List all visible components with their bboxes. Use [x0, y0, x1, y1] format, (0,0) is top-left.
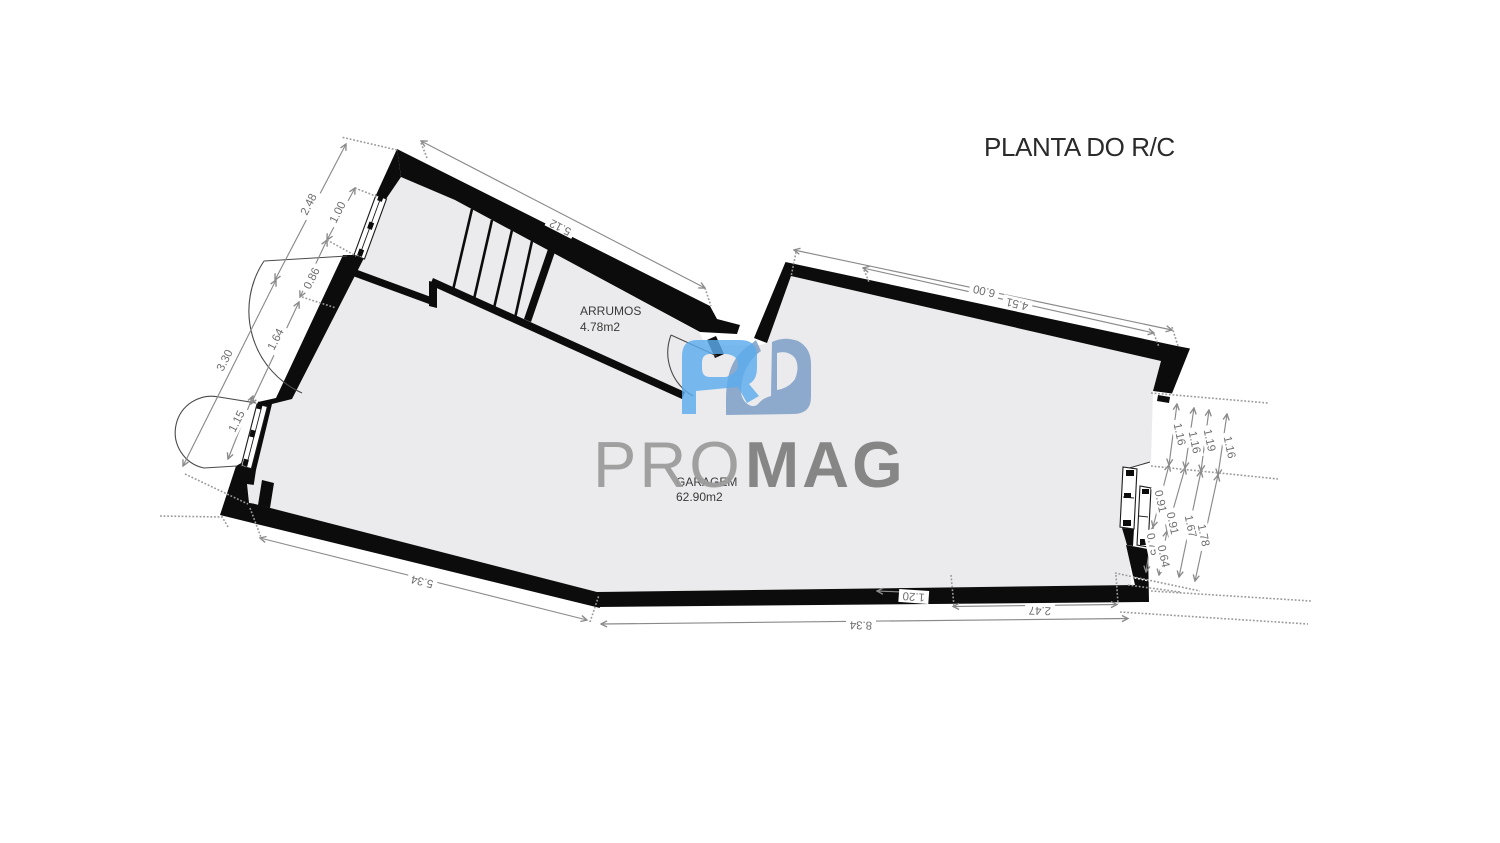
svg-text:1.20: 1.20 [902, 589, 925, 603]
svg-text:PRO: PRO [593, 428, 743, 501]
svg-text:4.78m2: 4.78m2 [580, 320, 620, 334]
svg-text:1.16: 1.16 [1186, 430, 1202, 454]
svg-text:MAG: MAG [745, 428, 906, 501]
svg-text:PLANTA DO R/C: PLANTA DO R/C [984, 132, 1175, 162]
svg-text:5.34: 5.34 [409, 572, 434, 589]
svg-text:1.78: 1.78 [1195, 523, 1211, 547]
svg-text:6.00: 6.00 [972, 282, 997, 299]
svg-text:1.16: 1.16 [1171, 422, 1187, 446]
svg-text:0.91: 0.91 [1164, 511, 1180, 535]
svg-text:8.34: 8.34 [849, 618, 872, 630]
svg-text:1.16: 1.16 [1221, 435, 1237, 459]
svg-text:ARRUMOS: ARRUMOS [580, 304, 641, 318]
svg-text:0.64: 0.64 [1155, 544, 1172, 569]
svg-text:4.51: 4.51 [1005, 295, 1030, 312]
svg-text:2.47: 2.47 [1028, 604, 1051, 617]
svg-text:1.19: 1.19 [1201, 428, 1217, 452]
